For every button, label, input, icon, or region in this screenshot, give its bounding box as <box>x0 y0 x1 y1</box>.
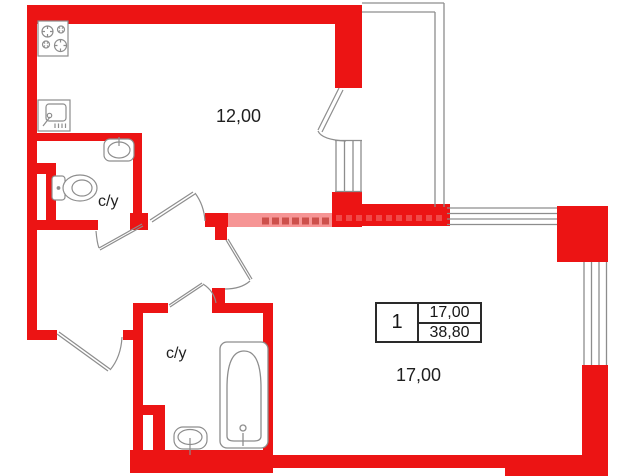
wall-top <box>27 5 362 24</box>
wall-hall-door-stub <box>215 227 227 240</box>
wall-bathroom1-bottom <box>35 220 98 230</box>
wall-bathroom1-hinge-block <box>130 213 148 230</box>
duct-wall-vertical <box>153 415 165 455</box>
kitchen-sink-icon <box>38 100 70 131</box>
door-swing-arc <box>195 193 205 221</box>
floor-plan-drawing <box>0 0 635 476</box>
wall-entrance-left <box>27 330 57 340</box>
kitchen-area-label: 12,00 <box>216 107 261 125</box>
balcony-door <box>318 88 346 141</box>
bathroom2-door <box>169 283 216 307</box>
window-top <box>447 208 557 225</box>
toilet-icon <box>52 175 97 201</box>
walls <box>27 5 608 476</box>
kitchen-door <box>150 192 205 222</box>
room-area-label: 17,00 <box>396 366 441 384</box>
bathroom2-label: с/у <box>166 346 186 362</box>
wall-kitchen-balcony-upper <box>335 5 362 88</box>
bathtub-icon <box>220 342 268 448</box>
wall-bathroom2-top-left <box>133 303 168 313</box>
balcony-window <box>335 140 362 192</box>
living-area-cell: 17,00 <box>419 304 480 324</box>
wall-bathroom2-left <box>133 303 143 450</box>
wash-basin-icon <box>104 137 134 161</box>
wall-bathroom1-niche-top <box>37 163 56 174</box>
window-right <box>584 262 607 365</box>
wall-bottom-bathroom <box>130 450 273 473</box>
stove-icon <box>38 21 68 56</box>
door-swing-arc <box>225 281 250 289</box>
bathroom1-label: с/у <box>98 194 118 210</box>
wall-entrance-right <box>123 330 137 340</box>
wall-corner-topright <box>557 206 608 262</box>
wall-bottom-room <box>273 455 583 468</box>
door-swing-arc <box>318 131 346 141</box>
door-swing-arc <box>96 231 99 248</box>
wall-bathroom2-door-stub <box>212 288 225 313</box>
bathroom1-door <box>96 224 143 250</box>
door-swing-arc <box>110 337 122 370</box>
floor-plan: 12,00 17,00 с/у с/у 1 17,00 38,80 <box>0 0 635 476</box>
area-summary-table: 1 17,00 38,80 <box>375 302 482 343</box>
room-door <box>225 239 252 289</box>
rooms-count-cell: 1 <box>377 304 419 341</box>
wall-left <box>27 5 37 340</box>
entrance-door <box>57 332 122 371</box>
balcony-outline <box>362 3 444 207</box>
duct-wall-horizontal <box>138 405 165 415</box>
total-area-cell: 38,80 <box>419 324 480 342</box>
